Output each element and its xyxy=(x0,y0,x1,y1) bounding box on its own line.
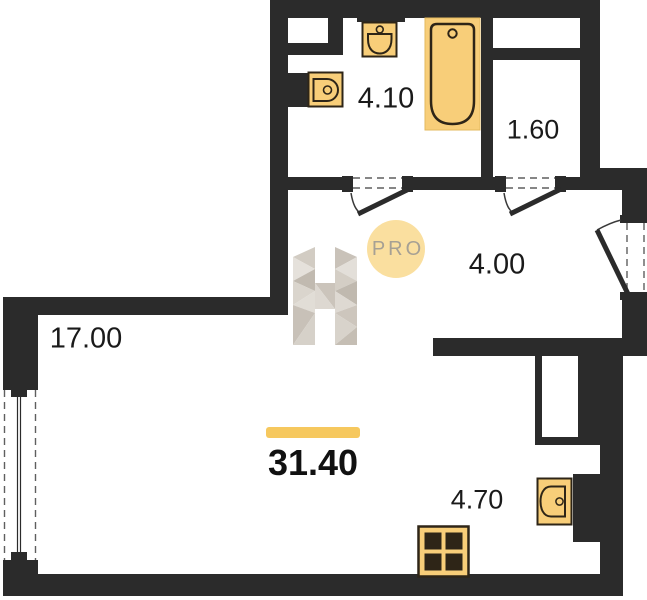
floor-plan: PRO 17.00 4.10 1.60 4.00 4.70 31.40 xyxy=(0,0,647,600)
total-area-label: 31.40 xyxy=(268,442,358,484)
watermark-h-icon xyxy=(293,247,357,345)
room-label-living: 17.00 xyxy=(50,323,123,356)
stove-icon xyxy=(419,527,469,577)
toilet-icon xyxy=(309,73,343,107)
window-glass xyxy=(18,397,21,553)
room-label-wardrobe: 1.60 xyxy=(507,115,560,146)
watermark-pro-text: PRO xyxy=(372,238,424,261)
bathtub-icon xyxy=(425,18,480,130)
total-area-underline xyxy=(266,427,360,438)
watermark-pro-badge: PRO xyxy=(367,220,425,278)
room-label-hallway: 4.00 xyxy=(469,249,525,282)
kitchen-sink-icon xyxy=(538,479,572,525)
washbasin-icon xyxy=(363,23,397,57)
room-label-bathroom: 4.10 xyxy=(358,83,414,116)
room-label-kitchen: 4.70 xyxy=(451,485,504,516)
